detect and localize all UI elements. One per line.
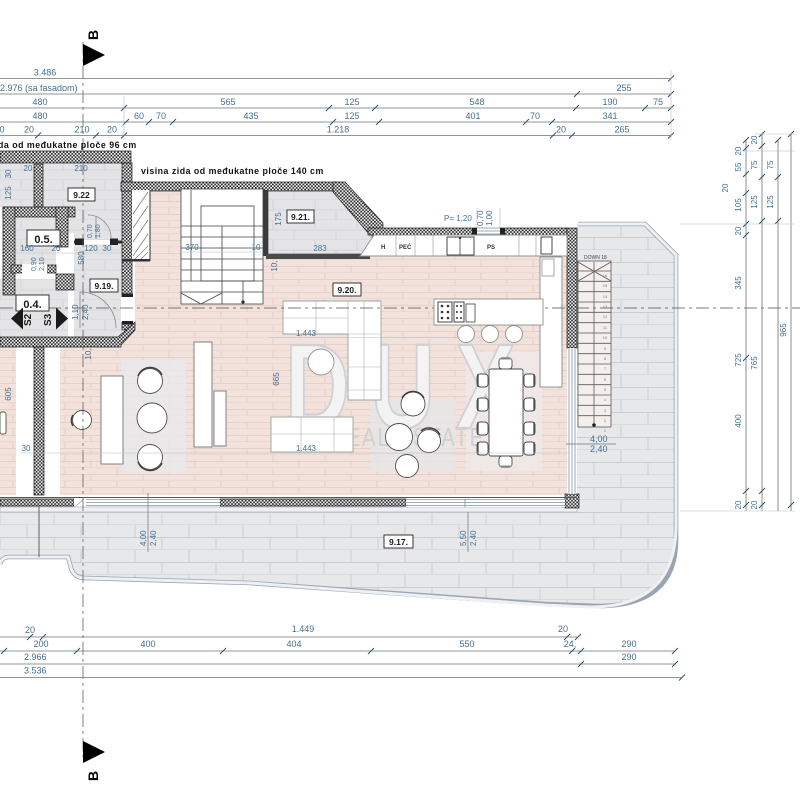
- svg-text:S2: S2: [23, 313, 34, 326]
- svg-text:1.443: 1.443: [296, 444, 317, 453]
- svg-text:200: 200: [33, 639, 48, 649]
- svg-text:S3: S3: [43, 313, 54, 326]
- svg-text:24,: 24,: [564, 639, 577, 649]
- svg-text:105: 105: [734, 198, 743, 212]
- svg-text:480: 480: [32, 97, 47, 107]
- svg-text:4,00: 4,00: [139, 530, 148, 546]
- svg-text:10: 10: [252, 243, 261, 252]
- svg-text:401: 401: [465, 111, 480, 121]
- svg-text:20: 20: [721, 183, 730, 192]
- svg-text:2,40: 2,40: [469, 530, 478, 546]
- svg-text:125: 125: [766, 195, 775, 209]
- svg-text:210: 210: [74, 125, 89, 135]
- svg-text:B: B: [85, 771, 101, 781]
- svg-text:125: 125: [750, 195, 759, 209]
- svg-text:14: 14: [603, 294, 608, 299]
- svg-text:3.536: 3.536: [24, 666, 47, 676]
- svg-text:0.5.: 0.5.: [34, 234, 52, 246]
- svg-text:0: 0: [0, 125, 5, 135]
- svg-text:2.966: 2.966: [24, 652, 47, 662]
- svg-text:160: 160: [20, 244, 34, 253]
- svg-text:1.218: 1.218: [327, 125, 350, 135]
- svg-text:0.4.: 0.4.: [23, 299, 41, 311]
- svg-text:16: 16: [603, 273, 608, 278]
- svg-text:2,40: 2,40: [590, 444, 608, 454]
- svg-text:565: 565: [220, 97, 235, 107]
- svg-text:20: 20: [24, 164, 33, 173]
- svg-text:15: 15: [603, 283, 608, 288]
- svg-text:965: 965: [779, 323, 788, 337]
- svg-text:3.486: 3.486: [34, 68, 57, 78]
- svg-text:0,90: 0,90: [31, 257, 38, 271]
- svg-text:550: 550: [459, 639, 474, 649]
- svg-text:404: 404: [286, 639, 301, 649]
- svg-text:B: B: [85, 30, 101, 40]
- svg-text:9.21.: 9.21.: [291, 212, 310, 222]
- svg-text:255: 255: [616, 83, 631, 93]
- svg-text:10: 10: [603, 335, 608, 340]
- svg-text:da od međukatne ploče 96 cm: da od međukatne ploče 96 cm: [0, 140, 137, 150]
- svg-text:0,70: 0,70: [87, 224, 94, 238]
- svg-text:1,80: 1,80: [95, 224, 102, 238]
- svg-text:765: 765: [750, 356, 759, 370]
- svg-text:30: 30: [4, 169, 13, 178]
- svg-text:20: 20: [750, 500, 759, 509]
- svg-text:10,: 10,: [84, 348, 93, 359]
- svg-text:400: 400: [140, 639, 155, 649]
- svg-text:605: 605: [4, 387, 13, 401]
- svg-text:9.19.: 9.19.: [95, 281, 114, 291]
- svg-text:0,70: 0,70: [476, 210, 485, 226]
- svg-text:125: 125: [4, 186, 13, 200]
- svg-text:20: 20: [52, 244, 61, 253]
- svg-text:1.449: 1.449: [292, 624, 315, 634]
- svg-text:175: 175: [274, 212, 283, 226]
- svg-text:H: H: [381, 245, 385, 251]
- svg-text:1,00: 1,00: [485, 210, 494, 226]
- svg-text:PS: PS: [487, 245, 495, 251]
- svg-text:125: 125: [344, 97, 359, 107]
- svg-text:290: 290: [621, 639, 636, 649]
- svg-text:20: 20: [25, 625, 35, 635]
- svg-text:30: 30: [22, 444, 31, 453]
- svg-text:PEĆ: PEĆ: [399, 243, 412, 251]
- svg-text:9.22: 9.22: [73, 190, 90, 200]
- svg-text:20: 20: [558, 624, 568, 634]
- svg-text:2,40: 2,40: [81, 304, 90, 320]
- svg-text:265: 265: [614, 125, 629, 135]
- svg-text:400: 400: [734, 414, 743, 428]
- svg-text:125: 125: [344, 111, 359, 121]
- svg-text:30: 30: [103, 244, 112, 253]
- svg-text:DOWN 18: DOWN 18: [584, 255, 607, 261]
- svg-text:70: 70: [156, 111, 166, 121]
- svg-text:20: 20: [24, 125, 34, 135]
- svg-text:2,10: 2,10: [39, 257, 46, 271]
- svg-text:20: 20: [734, 226, 743, 235]
- svg-text:5,50: 5,50: [459, 530, 468, 546]
- svg-text:120: 120: [84, 244, 98, 253]
- svg-text:190: 190: [602, 97, 617, 107]
- svg-text:1.443: 1.443: [296, 329, 317, 338]
- svg-text:P= 1,20: P= 1,20: [444, 214, 472, 223]
- svg-text:370: 370: [185, 243, 199, 252]
- svg-text:visina zida od međukatne ploče: visina zida od međukatne ploče 140 cm: [141, 166, 324, 176]
- svg-text:283: 283: [313, 244, 327, 253]
- svg-text:290: 290: [621, 652, 636, 662]
- svg-text:725: 725: [734, 353, 743, 367]
- svg-text:345: 345: [734, 276, 743, 290]
- svg-text:75: 75: [653, 97, 663, 107]
- svg-text:1,10: 1,10: [71, 304, 80, 320]
- svg-text:12: 12: [603, 314, 608, 319]
- svg-text:9.20.: 9.20.: [338, 285, 357, 295]
- svg-text:75: 75: [766, 160, 775, 169]
- svg-text:9.17.: 9.17.: [389, 537, 408, 547]
- svg-text:60: 60: [134, 111, 144, 121]
- svg-text:55: 55: [734, 162, 743, 171]
- svg-text:20: 20: [556, 125, 566, 135]
- svg-text:20: 20: [734, 500, 743, 509]
- svg-text:70: 70: [530, 111, 540, 121]
- svg-text:2.976 (sa fasadom): 2.976 (sa fasadom): [0, 83, 78, 93]
- svg-text:480: 480: [32, 111, 47, 121]
- svg-text:20: 20: [750, 135, 759, 144]
- svg-text:20: 20: [107, 125, 117, 135]
- svg-text:435: 435: [243, 111, 258, 121]
- svg-text:75: 75: [750, 160, 759, 169]
- svg-text:4,00: 4,00: [590, 434, 608, 444]
- svg-text:10,: 10,: [270, 260, 279, 271]
- svg-text:548: 548: [469, 97, 484, 107]
- svg-text:341: 341: [602, 111, 617, 121]
- svg-text:210: 210: [74, 164, 88, 173]
- svg-text:665: 665: [272, 372, 281, 386]
- svg-text:2,40: 2,40: [149, 530, 158, 546]
